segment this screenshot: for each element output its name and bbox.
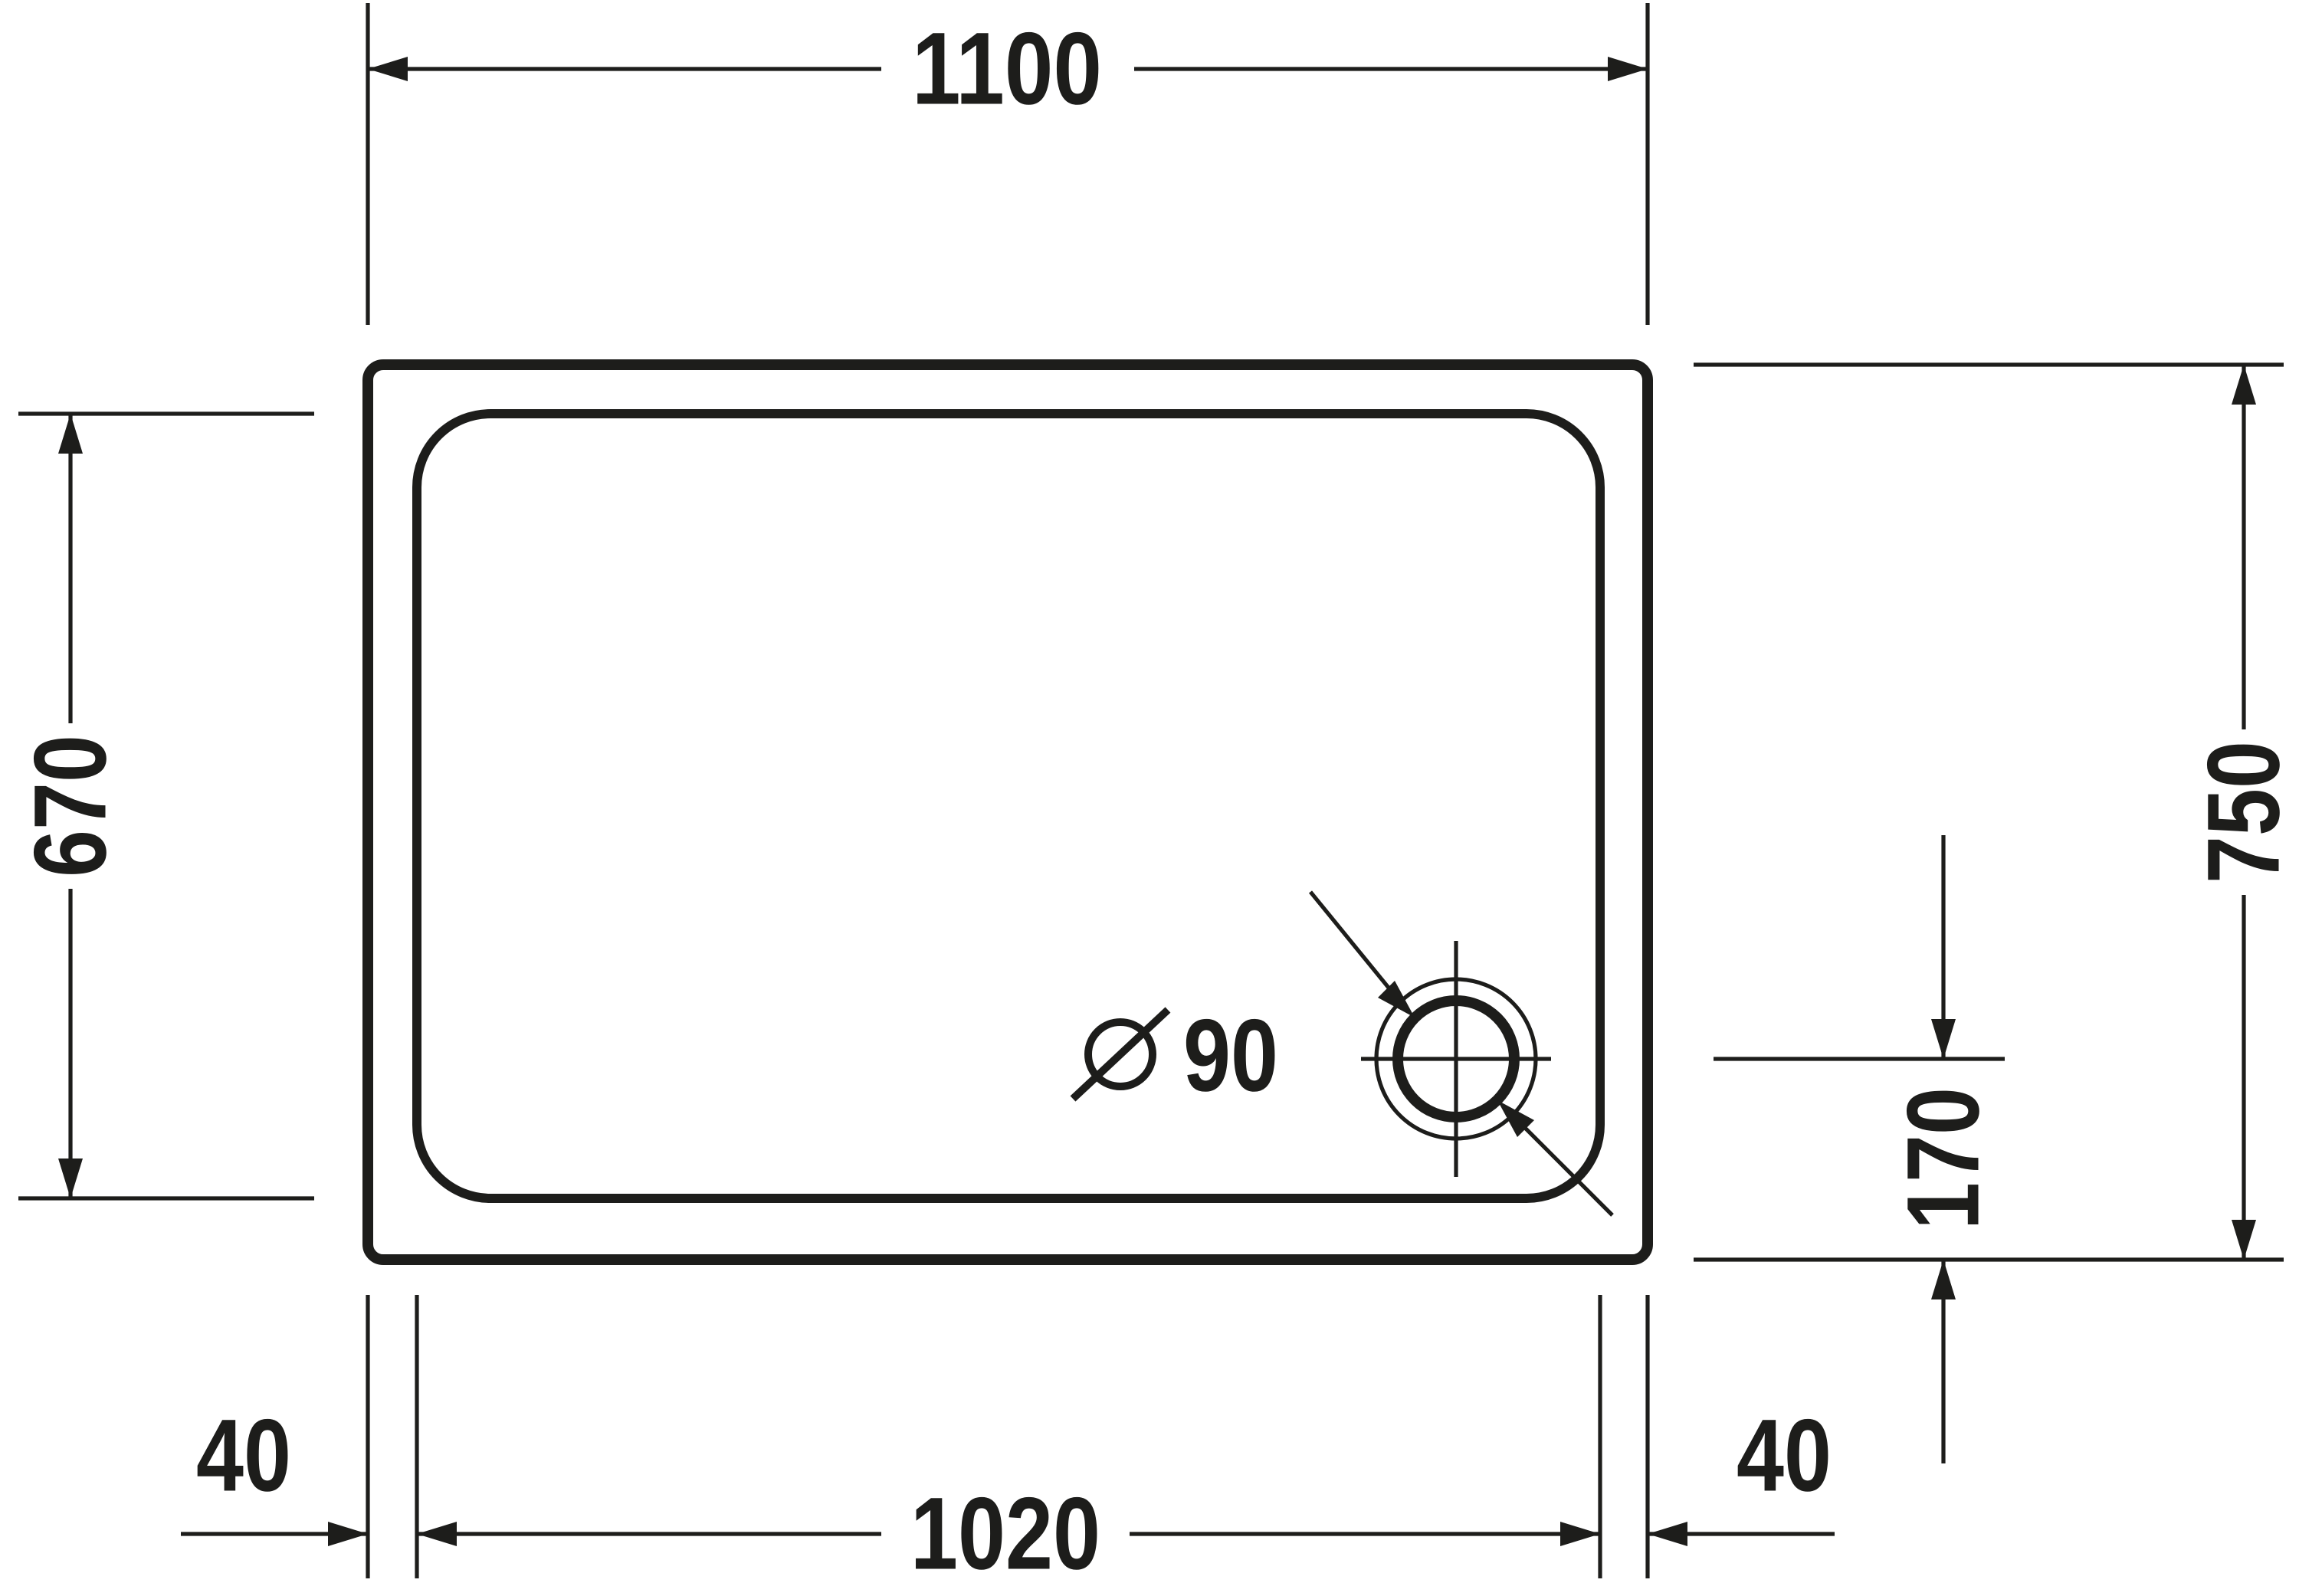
dim-inner-width-arrow-right [1560,1522,1600,1546]
dim-top-width-value: 1100 [912,12,1102,126]
diameter-icon [1073,1010,1168,1099]
dim-right-arrow-top [2232,365,2256,405]
drain-icon [1310,892,1612,1215]
tray-inner-rim [417,414,1600,1198]
dim-left-arrow-top [58,414,83,454]
dim-rim-right-value: 40 [1737,1399,1832,1513]
dim-drain-offset: 170 [1714,835,2005,1463]
dim-left-height-value: 670 [14,735,128,877]
drain-leader-arrow-upper [1378,981,1415,1018]
dim-rim-left-arrow [328,1522,368,1546]
drain-diameter-label: 90 [1073,999,1278,1113]
dim-offset-arrow-up [1931,1260,1956,1299]
drawing-canvas: 90 1100 670 750 170 [0,0,2299,1595]
drain-leader-line-upper [1310,892,1392,991]
dim-left-arrow-bottom [58,1158,83,1198]
dim-right-arrow-bottom [2232,1220,2256,1260]
dim-top-width: 1100 [368,3,1648,325]
dim-rim-left-value: 40 [196,1399,291,1513]
dim-bottom-chain: 40 1020 40 [181,1295,1835,1591]
dim-inner-width-value: 1020 [910,1477,1100,1591]
dim-drain-offset-value: 170 [1887,1087,2001,1230]
drain-diameter-value: 90 [1183,999,1278,1113]
technical-drawing: 90 1100 670 750 170 [0,0,2299,1595]
dim-top-arrow-left [368,57,408,81]
dim-top-arrow-right [1608,57,1648,81]
dim-right-height-value: 750 [2187,741,2299,883]
dim-left-height: 670 [14,414,315,1198]
dim-inner-width-arrow-left [417,1522,457,1546]
dim-rim-right-arrow [1648,1522,1687,1546]
dim-offset-arrow-down [1931,1019,1956,1059]
